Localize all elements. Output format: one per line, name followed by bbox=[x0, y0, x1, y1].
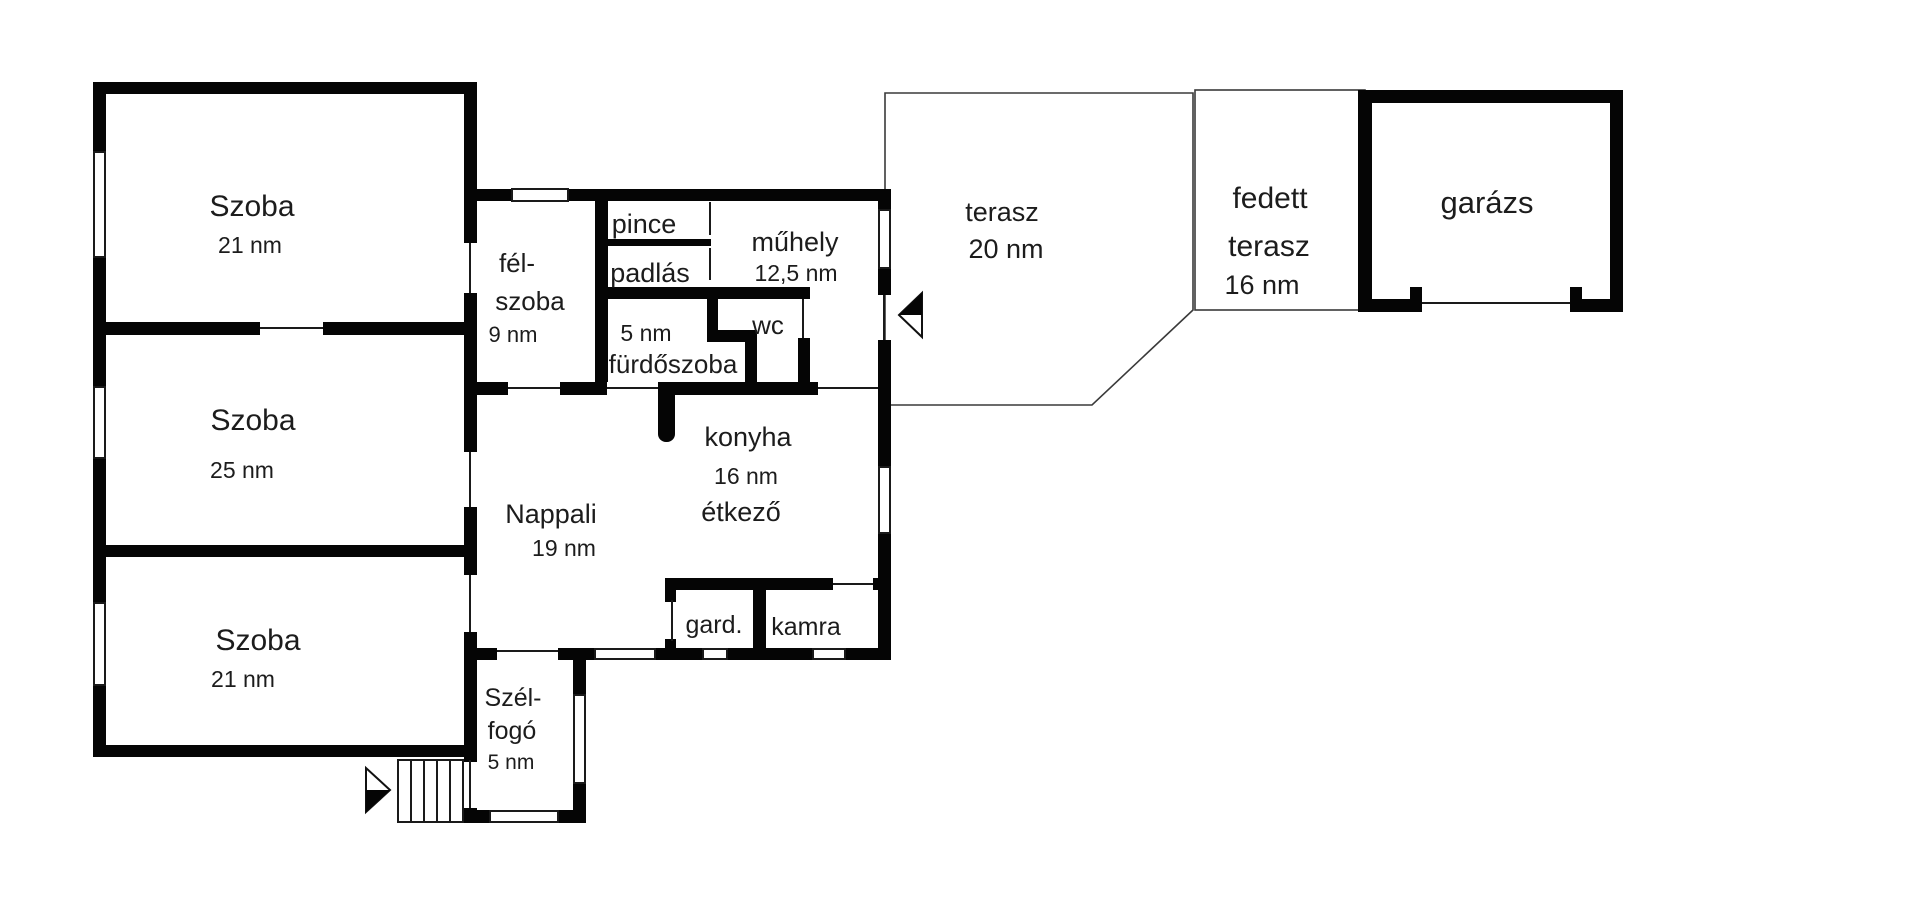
room-label-muhely: műhely bbox=[751, 227, 839, 257]
room-area-szoba-top: 21 nm bbox=[218, 232, 282, 258]
wall-segment bbox=[845, 648, 891, 660]
wall-segment bbox=[658, 382, 818, 395]
wall-segment bbox=[798, 338, 810, 382]
wall-segment bbox=[573, 650, 586, 695]
wall-segment bbox=[93, 545, 477, 557]
wall-segment bbox=[464, 632, 477, 762]
room-label-fedett-line2: terasz bbox=[1228, 230, 1310, 263]
room-label-pince: pince bbox=[612, 209, 677, 239]
room-label-konyha: konyha bbox=[704, 422, 792, 452]
room-label-fedett-line1: fedett bbox=[1232, 182, 1308, 215]
room-label-szoba-bottom: Szoba bbox=[215, 624, 300, 657]
wall-segment bbox=[464, 507, 477, 575]
room-label-szoba-top: Szoba bbox=[209, 190, 294, 223]
window bbox=[879, 210, 890, 268]
wall-segment bbox=[597, 287, 810, 299]
wall-segment bbox=[464, 810, 490, 823]
window bbox=[813, 649, 845, 659]
room-area-furdoszoba: 5 nm bbox=[620, 320, 671, 346]
wall-segment bbox=[878, 189, 891, 210]
room-label-szoba-middle: Szoba bbox=[210, 404, 295, 437]
room-area-szoba-bottom: 21 nm bbox=[211, 666, 275, 692]
window bbox=[574, 695, 585, 783]
stairs-outline bbox=[398, 760, 463, 822]
wall-segment bbox=[568, 189, 891, 201]
wall-segment bbox=[93, 458, 106, 603]
window bbox=[879, 467, 890, 533]
wall-segment bbox=[477, 189, 512, 201]
wall-segment bbox=[655, 648, 703, 660]
room-area-szelfogo: 5 nm bbox=[488, 751, 535, 774]
window bbox=[94, 603, 105, 685]
wall-segment bbox=[477, 382, 508, 395]
wall-segment bbox=[665, 590, 676, 602]
wall-segment bbox=[873, 578, 891, 590]
room-label-terasz: terasz bbox=[965, 197, 1039, 227]
room-label-padlas: padlás bbox=[610, 258, 690, 288]
wall-segment bbox=[753, 578, 766, 660]
window bbox=[94, 387, 105, 458]
entrance-stairs bbox=[398, 760, 463, 822]
floor-plan-drawing: Szoba 21 nm Szoba 25 nm Szoba 21 nm fél-… bbox=[0, 0, 1920, 900]
room-label-etkezo: étkező bbox=[701, 497, 781, 527]
wall-segment bbox=[93, 745, 477, 757]
wall-segment bbox=[605, 239, 711, 246]
room-label-szelfogo-line2: fogó bbox=[488, 717, 537, 745]
room-area-nappali: 19 nm bbox=[532, 535, 596, 561]
wall-segment bbox=[878, 340, 891, 467]
room-label-felszoba-line2: szoba bbox=[495, 286, 565, 316]
window bbox=[595, 649, 655, 659]
floor-plan: Szoba 21 nm Szoba 25 nm Szoba 21 nm fél-… bbox=[0, 0, 1920, 900]
wall-segment bbox=[93, 82, 477, 94]
front-door bbox=[490, 811, 558, 822]
window bbox=[512, 189, 568, 201]
wall-segment bbox=[707, 330, 745, 342]
wall-segment bbox=[93, 322, 260, 335]
window bbox=[703, 649, 727, 659]
wall-segment bbox=[1358, 90, 1623, 103]
room-area-fedett: 16 nm bbox=[1224, 270, 1299, 300]
room-label-wc: wc bbox=[751, 310, 784, 340]
room-label-kamra: kamra bbox=[771, 613, 841, 641]
window bbox=[94, 152, 105, 257]
wall-segment bbox=[323, 322, 477, 335]
wall-segment bbox=[878, 533, 891, 660]
wall-segment bbox=[1358, 90, 1372, 312]
room-area-szoba-middle: 25 nm bbox=[210, 457, 274, 483]
walls bbox=[93, 82, 1623, 823]
wall-segment bbox=[93, 82, 106, 152]
wall-segment bbox=[878, 268, 891, 295]
wall-segment bbox=[560, 382, 607, 395]
room-label-garazs: garázs bbox=[1440, 185, 1533, 220]
wall-segment bbox=[464, 293, 477, 452]
room-area-konyha: 16 nm bbox=[714, 463, 778, 489]
room-label-gardrob: gard. bbox=[686, 611, 743, 639]
wall-segment bbox=[477, 648, 497, 660]
room-area-felszoba: 9 nm bbox=[489, 322, 538, 347]
room-area-muhely: 12,5 nm bbox=[754, 260, 837, 286]
room-label-felszoba-line1: fél- bbox=[499, 248, 535, 278]
wall-segment bbox=[464, 82, 477, 243]
room-label-furdoszoba: fürdőszoba bbox=[609, 349, 738, 379]
wall-segment bbox=[1410, 287, 1422, 301]
wall-segment bbox=[665, 578, 833, 590]
wall-segment bbox=[727, 648, 813, 660]
wall-segment bbox=[665, 639, 676, 650]
wall-segment bbox=[558, 810, 586, 823]
wall-segment bbox=[1570, 287, 1582, 301]
entrance-arrow-south bbox=[366, 768, 390, 812]
room-label-szelfogo-line1: Szél- bbox=[485, 684, 542, 712]
room-area-terasz: 20 nm bbox=[968, 234, 1043, 264]
wall-segment bbox=[658, 392, 675, 412]
wall-segment bbox=[1610, 90, 1623, 312]
room-label-nappali: Nappali bbox=[505, 499, 597, 529]
